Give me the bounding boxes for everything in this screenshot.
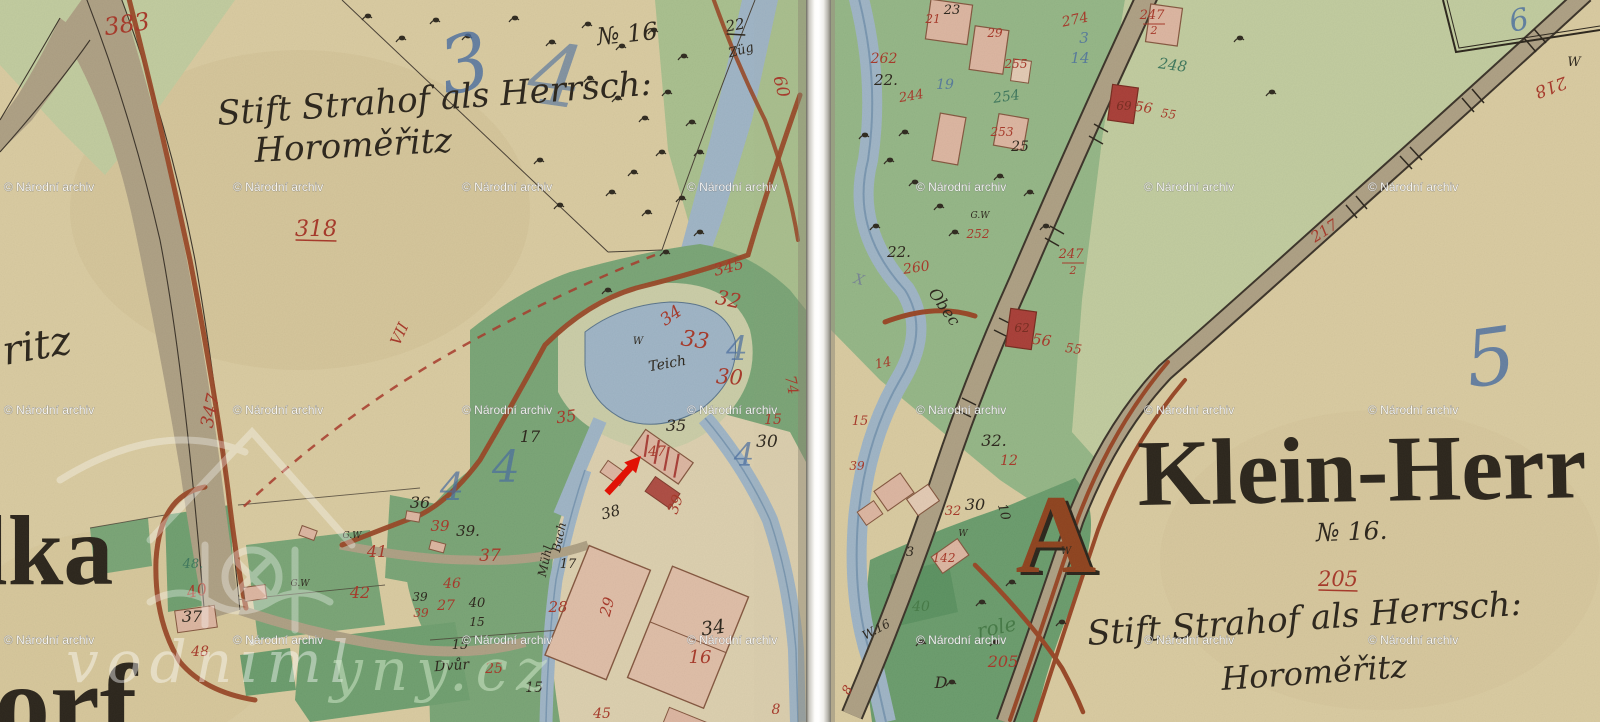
archive-watermark-text: © Národní archiv [233, 403, 323, 417]
sheet-divider [806, 0, 831, 722]
archive-watermark-text: © Národní archiv [4, 633, 94, 647]
paper-grain [0, 0, 806, 722]
archive-watermark-text: © Národní archiv [233, 633, 323, 647]
archive-watermark-text: © Národní archiv [687, 403, 777, 417]
archive-watermark-text: © Národní archiv [1144, 403, 1234, 417]
archive-watermark-text: © Národní archiv [462, 180, 552, 194]
archive-watermark-text: © Národní archiv [916, 180, 1006, 194]
paper-grain [831, 0, 1600, 722]
archive-watermark-text: © Národní archiv [1368, 403, 1458, 417]
archive-watermark-text: © Národní archiv [4, 180, 94, 194]
archive-watermark-text: © Národní archiv [1368, 180, 1458, 194]
map-viewer-canvas: 38334№ 16Stift Strahof als Herrsch:Horom… [0, 0, 1600, 722]
archive-watermark-text: © Národní archiv [687, 180, 777, 194]
archive-watermark-text: © Národní archiv [1368, 633, 1458, 647]
archive-watermark-text: © Národní archiv [233, 180, 323, 194]
archive-watermark-text: © Národní archiv [1144, 180, 1234, 194]
left-sheet-edge-shadow [798, 0, 806, 722]
archive-watermark-text: © Národní archiv [687, 633, 777, 647]
archive-watermark-text: © Národní archiv [916, 403, 1006, 417]
archive-watermark-text: © Národní archiv [916, 633, 1006, 647]
cadastral-map-svg: 38334№ 16Stift Strahof als Herrsch:Horom… [0, 0, 1600, 722]
archive-watermark-text: © Národní archiv [4, 403, 94, 417]
right-sheet-edge-shadow [831, 0, 835, 722]
archive-watermark-text: © Národní archiv [462, 403, 552, 417]
right-map-sheet: Klein-Herr№ 16.205Stift Strahof als Herr… [831, 0, 1600, 722]
archive-watermark-text: © Národní archiv [1144, 633, 1234, 647]
archive-watermark-text: © Národní archiv [462, 633, 552, 647]
left-map-sheet: 38334№ 16Stift Strahof als Herrsch:Horom… [0, 0, 806, 722]
